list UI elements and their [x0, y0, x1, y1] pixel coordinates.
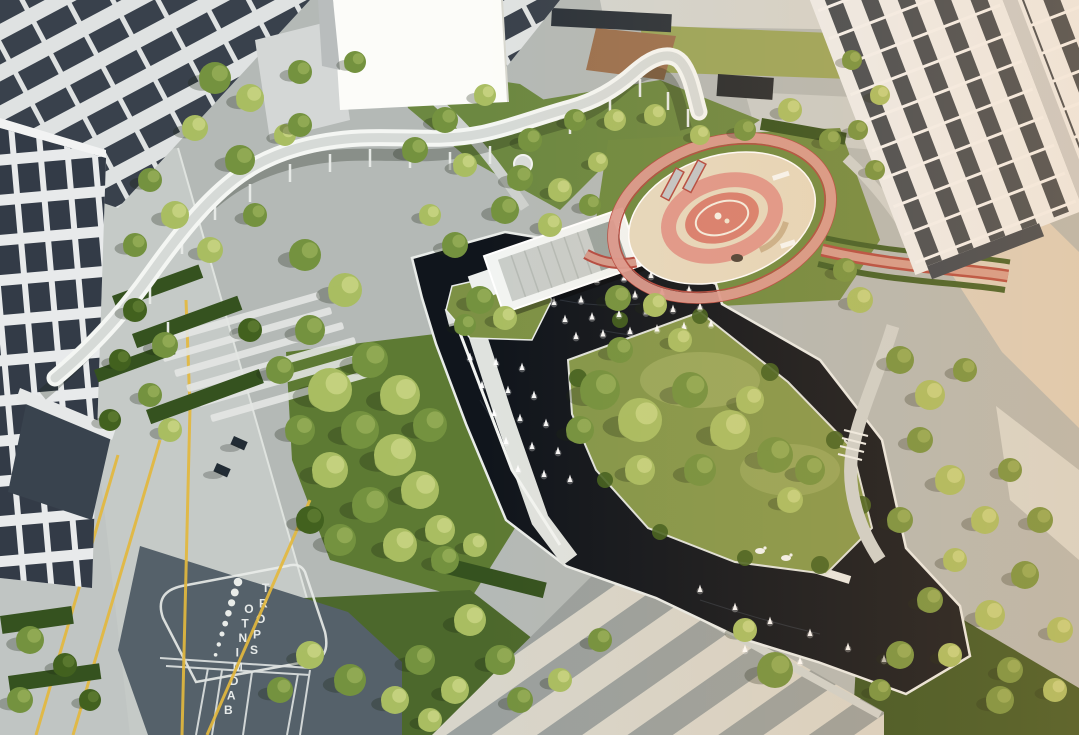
- shrub: [761, 363, 779, 381]
- court-dot: [225, 610, 232, 617]
- shrub: [737, 550, 753, 566]
- shrub: [597, 472, 613, 488]
- court-dot: [231, 588, 239, 596]
- aerial-photo: BADMINTO SPORT: [0, 0, 1079, 735]
- pool-house-roof: [716, 74, 773, 100]
- shrub: [652, 524, 668, 540]
- court-dot: [217, 642, 221, 646]
- court-dot: [234, 578, 243, 587]
- court-dot: [228, 599, 235, 606]
- crawl-hole: [731, 254, 743, 262]
- court-dot: [219, 631, 224, 636]
- play-table: [715, 213, 722, 220]
- court-dot: [222, 621, 228, 627]
- shrub: [811, 556, 829, 574]
- court-dot: [214, 653, 218, 657]
